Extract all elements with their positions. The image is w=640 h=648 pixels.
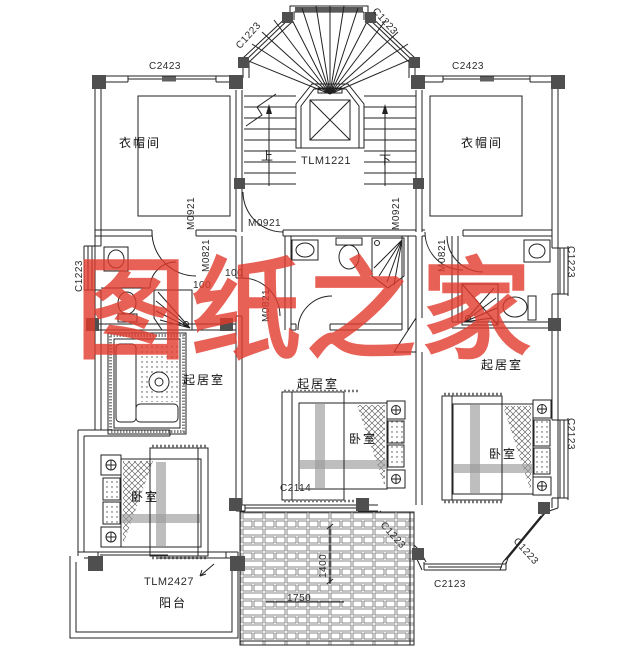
- door-label-m0921-left: M0921: [186, 197, 197, 230]
- door-label-m0921-center: M0921: [248, 218, 281, 229]
- pillow-icon: [534, 420, 550, 446]
- room-label-living-center: 起居室: [297, 378, 339, 391]
- window-label-c2423-left: C2423: [149, 61, 181, 72]
- room-label-living-left: 起居室: [183, 374, 225, 387]
- pillow-icon: [388, 421, 404, 443]
- door-label-tlm2427: TLM2427: [144, 576, 194, 588]
- pillow-icon: [388, 445, 404, 467]
- room-label-bedroom-right: 卧室: [489, 448, 517, 461]
- room-label-balcony: 阳台: [159, 597, 187, 610]
- dimension-roof-horizontal: 1750: [287, 593, 311, 604]
- room-label-cloakroom-right: 衣帽间: [461, 137, 503, 150]
- window-label-c2123-bay-bottom: C2123: [434, 579, 466, 590]
- stair-down-label: 下: [379, 154, 393, 167]
- pillow-icon: [103, 478, 120, 500]
- window-label-c1223-right-wall: C1223: [565, 246, 576, 278]
- window-label-c2423-right: C2423: [452, 61, 484, 72]
- pillow-icon: [103, 502, 120, 524]
- window-label-c2123-right-wall: C2123: [565, 418, 576, 450]
- watermark: 图纸之家: [76, 256, 536, 366]
- room-label-bedroom-left: 卧室: [131, 491, 159, 504]
- door-label-tlm1221: TLM1221: [301, 155, 351, 167]
- stair-up-label: 上: [261, 150, 275, 163]
- floor-plan: C1223 C1223 C2423 C2423 衣帽间 衣帽间 上 TLM122…: [0, 0, 640, 648]
- table-icon: [149, 372, 169, 392]
- window-label-c2114: C2114: [280, 483, 311, 494]
- door-label-m0921-right: M0921: [391, 197, 402, 230]
- toilet-icon: [336, 238, 362, 245]
- room-label-bedroom-center: 卧室: [349, 433, 377, 446]
- dimension-roof-vertical: 1400: [318, 554, 329, 578]
- room-label-cloakroom-left: 衣帽间: [119, 137, 161, 150]
- pillow-icon: [534, 448, 550, 474]
